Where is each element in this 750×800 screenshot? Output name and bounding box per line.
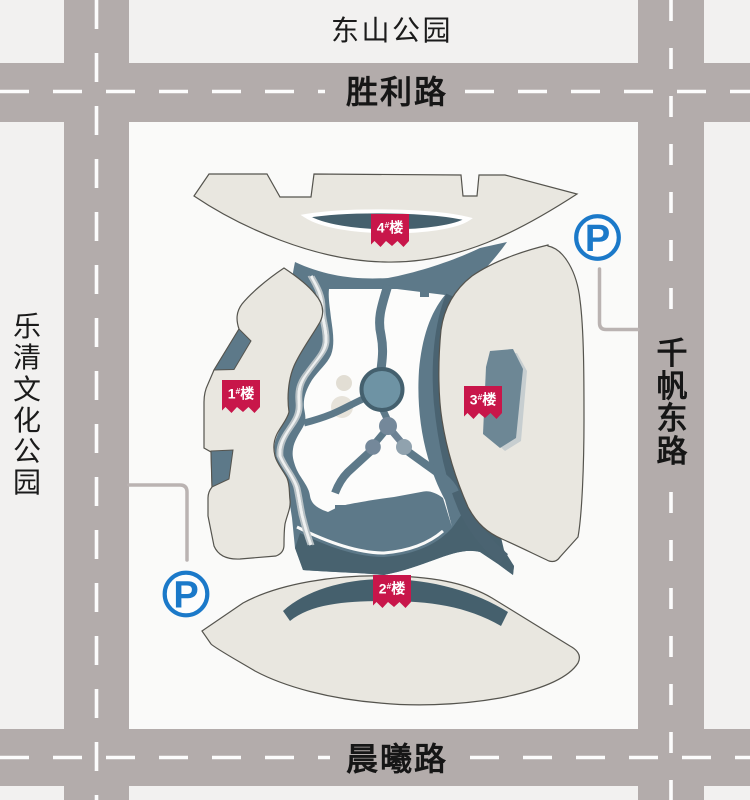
svg-text:文: 文	[13, 374, 41, 405]
svg-text:胜利路: 胜利路	[346, 74, 448, 110]
svg-text:1#楼: 1#楼	[228, 386, 255, 402]
svg-text:园: 园	[13, 467, 41, 498]
svg-text:化: 化	[13, 405, 41, 436]
svg-text:3#楼: 3#楼	[470, 392, 497, 408]
svg-text:东: 东	[657, 401, 688, 436]
svg-text:帆: 帆	[657, 369, 688, 404]
svg-text:清: 清	[13, 342, 41, 373]
svg-text:乐: 乐	[13, 311, 41, 342]
svg-text:晨曦路: 晨曦路	[346, 741, 448, 777]
svg-text:东山公园: 东山公园	[331, 15, 453, 46]
svg-text:4#楼: 4#楼	[377, 220, 404, 236]
svg-text:2#楼: 2#楼	[379, 581, 406, 597]
svg-text:公: 公	[13, 436, 41, 467]
svg-text:路: 路	[657, 434, 689, 469]
svg-text:千: 千	[657, 336, 688, 371]
svg-text:P: P	[585, 218, 610, 260]
svg-text:P: P	[173, 575, 198, 617]
